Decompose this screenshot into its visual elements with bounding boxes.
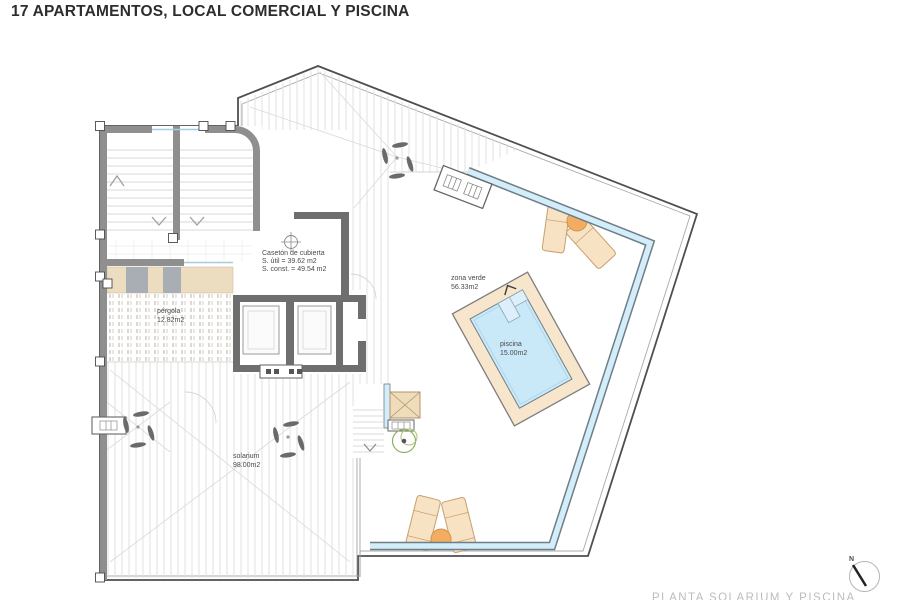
solarium-label: solarium bbox=[233, 453, 260, 460]
pergola-label: pérgola bbox=[157, 308, 180, 315]
caseton-label: Casetón de cubierta bbox=[262, 250, 325, 257]
terrace-steps-floor bbox=[352, 406, 385, 458]
floorplan-page: 17 APARTAMENTOS, LOCAL COMERCIAL Y PISCI… bbox=[0, 0, 900, 600]
caseton-const-area: S. const. = 49.54 m2 bbox=[262, 266, 327, 273]
zona-verde-label: zona verde bbox=[451, 275, 486, 282]
piscina-area: 15.00m2 bbox=[500, 350, 527, 357]
pergola-area: 12.82m2 bbox=[157, 317, 184, 324]
piscina-label: piscina bbox=[500, 341, 522, 348]
vent-grille-icon bbox=[92, 417, 126, 434]
drawing-caption: PLANTA SOLARIUM Y PISCINA bbox=[652, 592, 897, 600]
solarium-area: 98.00m2 bbox=[233, 462, 260, 469]
elevator-car bbox=[243, 306, 279, 354]
zona-verde-area: 56.33m2 bbox=[451, 284, 478, 291]
door-threshold bbox=[260, 365, 302, 378]
floorplan-drawing: Casetón de cubierta S. útil = 39.62 m2 S… bbox=[0, 0, 900, 600]
stair-block-floor bbox=[100, 126, 262, 268]
left-wall bbox=[100, 126, 107, 580]
north-compass-icon: N bbox=[849, 556, 880, 592]
caseton-util-area: S. útil = 39.62 m2 bbox=[262, 258, 317, 265]
compass-north-label: N bbox=[849, 556, 854, 563]
skylight-box bbox=[390, 392, 420, 418]
page-title: 17 APARTAMENTOS, LOCAL COMERCIAL Y PISCI… bbox=[11, 3, 410, 21]
